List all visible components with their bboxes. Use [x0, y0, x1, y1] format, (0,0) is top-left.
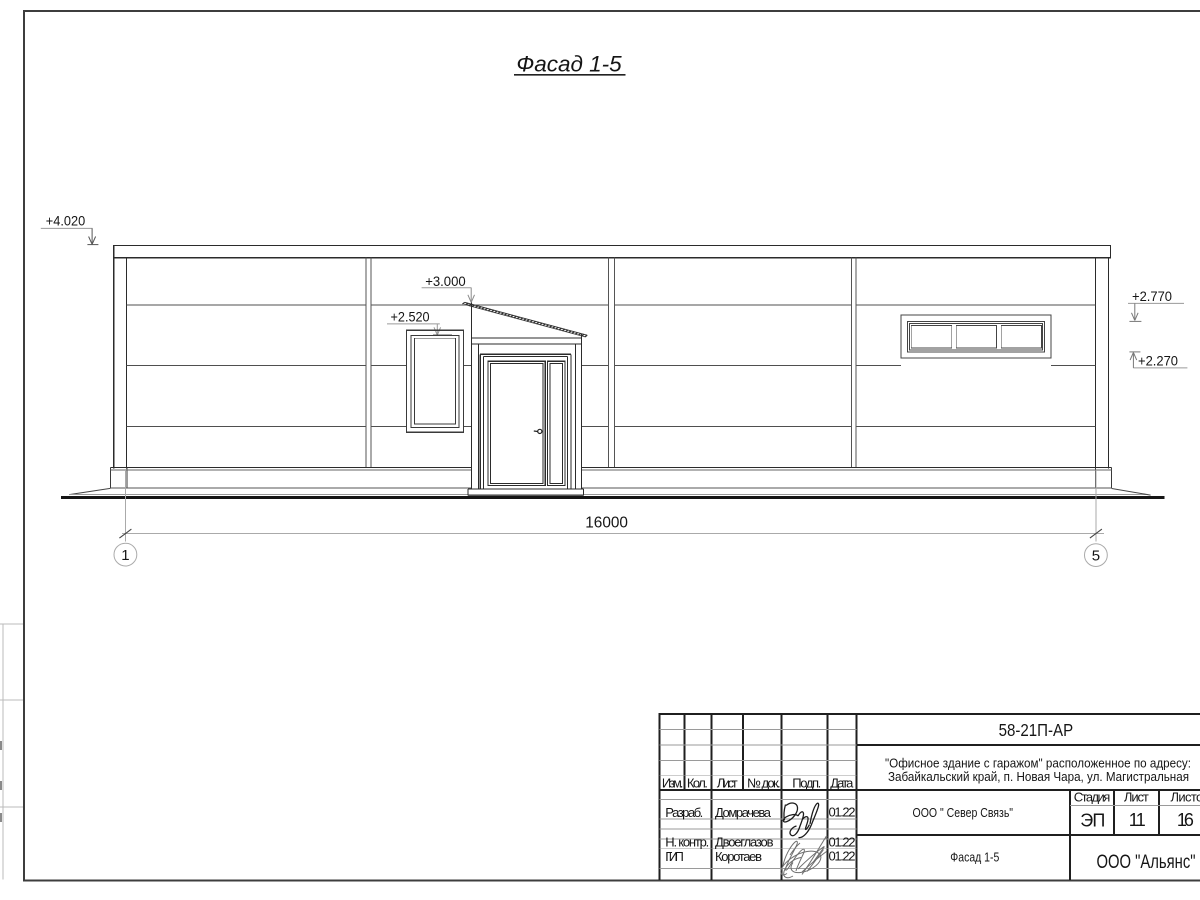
svg-text:№ док.: № док. [747, 776, 781, 791]
svg-text:Лист: Лист [1124, 790, 1149, 805]
svg-text:+2.520: +2.520 [391, 308, 430, 324]
svg-text:16: 16 [1177, 810, 1194, 830]
svg-text:Стадия: Стадия [1074, 790, 1111, 805]
svg-text:Коротаев: Коротаев [715, 849, 762, 864]
svg-text:+3.000: +3.000 [425, 273, 466, 289]
svg-text:ЭП: ЭП [1080, 811, 1105, 831]
svg-text:Домрачева: Домрачева [715, 805, 772, 820]
svg-text:1: 1 [121, 547, 129, 564]
svg-text:+2.770: +2.770 [1132, 288, 1172, 304]
svg-text:5: 5 [1092, 548, 1100, 565]
svg-text:01.22: 01.22 [829, 849, 856, 864]
svg-text:58-21П-АР: 58-21П-АР [999, 720, 1074, 740]
svg-text:Лист: Лист [717, 776, 738, 791]
svg-text:11: 11 [1129, 810, 1146, 830]
svg-text:ООО " Север Связь": ООО " Север Связь" [913, 805, 1014, 820]
svg-text:Листов: Листов [1171, 790, 1200, 805]
svg-text:Кол.: Кол. [687, 776, 708, 791]
svg-text:Дата: Дата [830, 776, 854, 791]
svg-text:Двоеглазов: Двоеглазов [715, 835, 774, 850]
svg-text:ООО "Альянс": ООО "Альянс" [1097, 851, 1196, 873]
svg-text:Фасад 1-5: Фасад 1-5 [950, 850, 999, 864]
svg-text:16000: 16000 [585, 515, 628, 532]
svg-text:Фасад 1-5: Фасад 1-5 [516, 52, 622, 77]
svg-text:+4.020: +4.020 [46, 213, 86, 229]
svg-text:01.22: 01.22 [829, 805, 856, 820]
svg-text:Подп.: Подп. [792, 776, 821, 791]
svg-text:Н. контр.: Н. контр. [665, 835, 709, 850]
svg-text:01.22: 01.22 [829, 834, 856, 849]
svg-text:Разраб.: Разраб. [665, 805, 703, 820]
svg-text:+2.270: +2.270 [1138, 352, 1178, 368]
svg-text:Забайкальский край, п. Новая Ч: Забайкальский край, п. Новая Чара, ул. М… [888, 769, 1189, 784]
svg-text:ГИП: ГИП [665, 849, 684, 864]
svg-text:Изм.: Изм. [662, 776, 684, 791]
